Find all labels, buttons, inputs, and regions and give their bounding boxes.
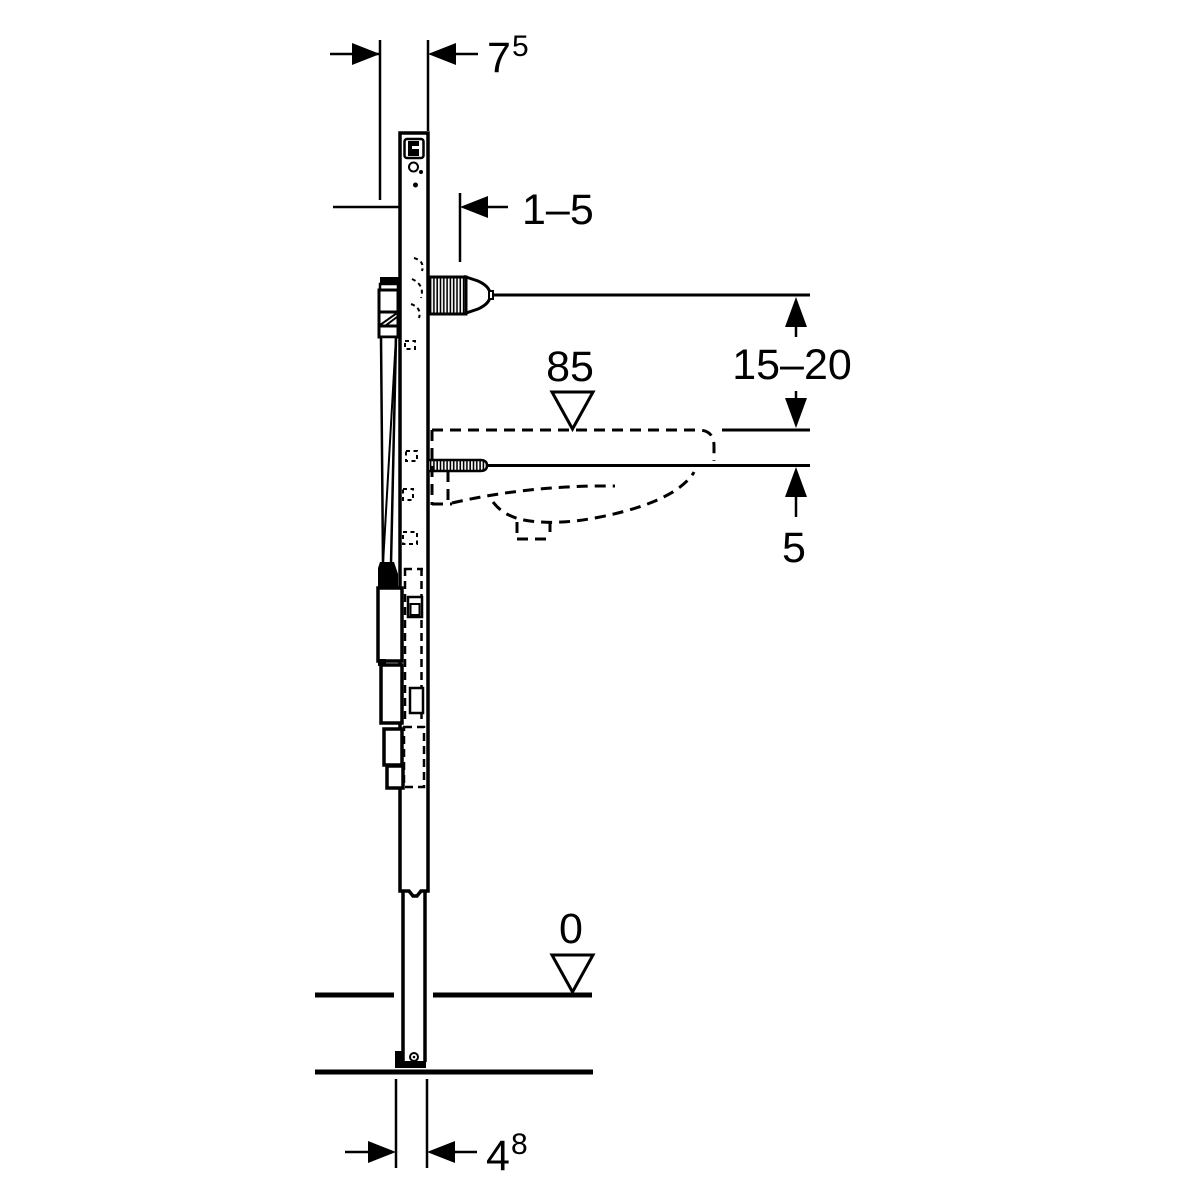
mounting-box-c bbox=[384, 729, 402, 765]
dimension-foot-width: 4 8 bbox=[345, 1079, 528, 1180]
arrow-right-icon bbox=[368, 1141, 396, 1163]
level-triangle-icon bbox=[552, 392, 593, 429]
water-supply-bracket bbox=[378, 277, 399, 588]
dimension-label-frame-depth-sup: 5 bbox=[512, 30, 529, 63]
plug-tip-nub bbox=[489, 291, 493, 299]
bowl-underside-dashed bbox=[493, 472, 694, 522]
mounting-box-b bbox=[381, 665, 402, 723]
washbasin-outline bbox=[432, 430, 714, 539]
dimension-label-foot-width: 4 bbox=[486, 1132, 510, 1180]
washbasin-frame-side-view: 7 5 1–5 bbox=[0, 0, 1200, 1200]
rail-hole-small bbox=[419, 170, 423, 174]
foot-clamp bbox=[395, 1051, 403, 1068]
rod-body bbox=[428, 460, 487, 471]
plug-cone-cap bbox=[466, 277, 490, 313]
installation-diagram-page: 7 5 1–5 bbox=[0, 0, 1200, 1200]
basin-rim-dashed bbox=[432, 430, 714, 461]
dimension-label-wall-lining: 1–5 bbox=[522, 186, 594, 234]
dimension-connection-height: 15–20 bbox=[732, 297, 852, 428]
bowl-back-rim-dashed bbox=[452, 486, 615, 503]
dimension-label-frame-depth: 7 bbox=[487, 34, 511, 82]
plug-threaded-body bbox=[429, 277, 466, 314]
floor-lines bbox=[315, 995, 593, 1072]
mounting-boxes bbox=[378, 588, 403, 788]
dimension-wall-lining: 1–5 bbox=[333, 186, 594, 262]
bracket-base bbox=[379, 326, 398, 337]
foot-screw-center bbox=[413, 1056, 416, 1059]
arrow-up-icon bbox=[785, 467, 807, 497]
arrow-left-icon bbox=[427, 1141, 455, 1163]
rail-hole-small bbox=[413, 183, 418, 188]
mounting-box-d bbox=[387, 766, 403, 788]
mounting-box-a bbox=[378, 588, 402, 661]
level-label-basin: 85 bbox=[546, 343, 594, 391]
bracket-cap bbox=[380, 277, 399, 283]
arrow-down-icon bbox=[785, 398, 807, 428]
dimension-rim-to-rod: 5 bbox=[782, 467, 807, 572]
arrow-left-icon bbox=[460, 196, 488, 218]
frame-leg bbox=[395, 891, 426, 1068]
arrow-left-icon bbox=[428, 43, 456, 65]
level-marker-floor: 0 bbox=[552, 905, 593, 992]
arrow-right-icon bbox=[352, 43, 380, 65]
dimension-label-rim-to-rod: 5 bbox=[782, 524, 806, 572]
protective-plug bbox=[429, 277, 493, 314]
level-triangle-icon bbox=[552, 955, 593, 992]
dimension-label-foot-width-sup: 8 bbox=[511, 1128, 528, 1161]
arrow-up-icon bbox=[785, 297, 807, 327]
bracket-body bbox=[379, 290, 398, 312]
pipe-foot bbox=[378, 562, 398, 588]
threaded-rod bbox=[428, 460, 487, 471]
level-label-floor: 0 bbox=[559, 905, 583, 953]
level-marker-basin: 85 bbox=[546, 343, 594, 429]
dimension-label-connection-height: 15–20 bbox=[732, 341, 852, 389]
trap-bracket-lower bbox=[410, 688, 423, 713]
rail-hole bbox=[409, 163, 418, 172]
